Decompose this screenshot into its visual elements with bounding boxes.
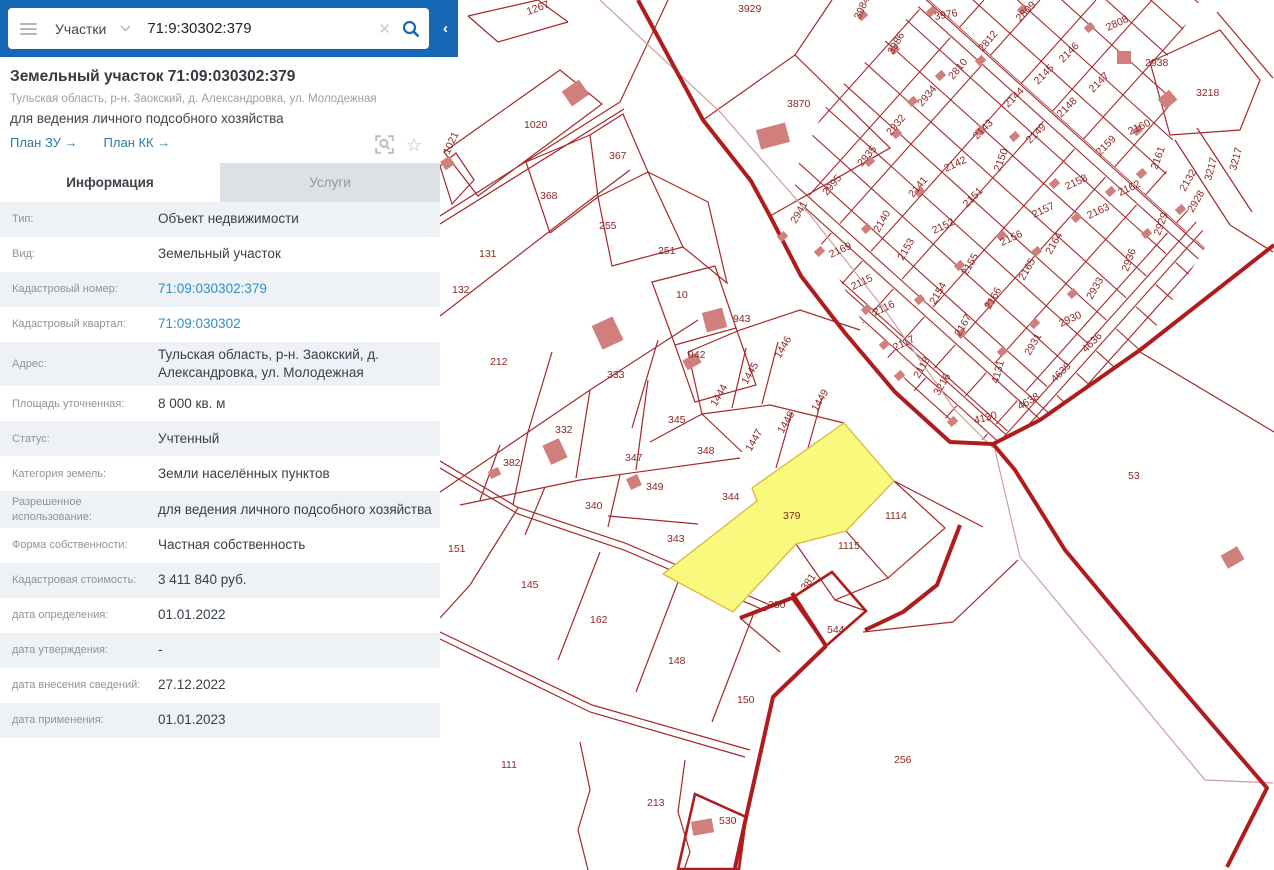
row-label: Категория земель:	[12, 467, 158, 481]
parcel-label-2159[interactable]: 2159	[1094, 133, 1119, 158]
parcel-label-3217[interactable]: 3217	[1202, 156, 1220, 182]
parcel-label-343[interactable]: 343	[667, 533, 685, 545]
parcel-label-2930[interactable]: 2930	[1057, 309, 1083, 330]
row-label: Форма собственности:	[12, 538, 158, 552]
row-label: Кадастровый номер:	[12, 282, 158, 296]
table-row: Разрешенное использование:для ведения ли…	[0, 491, 440, 528]
row-value: 3 411 840 руб.	[158, 571, 432, 589]
parcel-label-2936[interactable]: 2936	[1120, 247, 1139, 273]
search-category-label: Участки	[55, 21, 106, 37]
buildings	[440, 4, 1244, 836]
parcel-label-3929[interactable]: 3929	[738, 3, 762, 15]
building	[702, 308, 727, 333]
parcel-label-1446[interactable]: 1446	[772, 334, 794, 360]
parcel-label-2158[interactable]: 2158	[1063, 172, 1089, 193]
building	[1029, 318, 1040, 329]
parcel-label-1448[interactable]: 1448	[775, 409, 797, 435]
row-value: 8 000 кв. м	[158, 395, 432, 413]
parcel-label-380[interactable]: 380	[768, 599, 786, 611]
cadastral-map[interactable]: 1267392939843976398628092808281229382810…	[440, 0, 1274, 870]
map-area[interactable]: 1267392939843976398628092808281229382810…	[440, 0, 1274, 870]
parcel-label-367[interactable]: 367	[609, 150, 627, 162]
info-panel: Земельный участок 71:09:030302:379 Тульс…	[0, 0, 440, 870]
parcel-label-368[interactable]: 368	[540, 190, 558, 202]
parcel-label-131[interactable]: 131	[479, 248, 497, 260]
row-value: 01.01.2022	[158, 606, 432, 624]
parcel-label-2932[interactable]: 2932	[884, 112, 908, 138]
parcel-label-1449[interactable]: 1449	[809, 387, 831, 413]
table-row: дата внесения сведений:27.12.2022	[0, 668, 440, 703]
building	[1136, 168, 1147, 179]
menu-icon[interactable]	[20, 23, 37, 35]
parcel-label-530[interactable]: 530	[719, 815, 737, 827]
parcel-label-943[interactable]: 943	[733, 313, 751, 325]
table-row: Адрес:Тульская область, р-н. Заокский, д…	[0, 342, 440, 386]
building	[1009, 131, 1020, 142]
parcel-label-379[interactable]: 379	[783, 510, 801, 522]
parcel-label-344[interactable]: 344	[722, 491, 740, 503]
building	[440, 156, 455, 171]
table-row: Вид:Земельный участок	[0, 237, 440, 272]
parcel-label-2146[interactable]: 2146	[1057, 40, 1082, 65]
parcel-label-2149[interactable]: 2149	[1024, 121, 1049, 146]
parcel-label-145[interactable]: 145	[521, 579, 539, 591]
search-input[interactable]	[147, 20, 378, 37]
object-header: Земельный участок 71:09:030302:379 Тульс…	[0, 57, 440, 163]
row-label: дата применения:	[12, 713, 158, 727]
parcel-label-2148[interactable]: 2148	[1055, 95, 1080, 120]
parcel-label-381[interactable]: 381	[799, 571, 819, 592]
table-row: Тип:Объект недвижимости	[0, 202, 440, 237]
search-category-select[interactable]: Участки	[55, 21, 131, 37]
building	[1105, 186, 1116, 197]
table-row: Форма собственности:Частная собственност…	[0, 528, 440, 563]
parcel-label-349[interactable]: 349	[646, 481, 664, 493]
row-label: дата внесения сведений:	[12, 678, 158, 692]
parcel-label-256[interactable]: 256	[894, 754, 912, 766]
building	[814, 246, 825, 257]
parcel-label-2928[interactable]: 2928	[1185, 188, 1207, 214]
row-value: -	[158, 641, 432, 659]
collapse-panel-button[interactable]: ‹	[433, 0, 458, 57]
parcel-label-2155[interactable]: 2155	[959, 251, 981, 277]
parcel-label-251[interactable]: 251	[658, 245, 676, 257]
parcel-label-111[interactable]: 111	[501, 759, 517, 771]
building	[756, 122, 790, 149]
building	[997, 346, 1008, 357]
parcel-label-2809[interactable]: 2809	[1014, 0, 1039, 24]
building	[1158, 90, 1178, 110]
parcel-label-2116[interactable]: 2116	[871, 298, 897, 318]
parcel-label-2933[interactable]: 2933	[1084, 275, 1106, 301]
parcel-label-2931[interactable]: 2931	[1022, 331, 1044, 357]
table-row: Категория земель:Земли населённых пункто…	[0, 456, 440, 491]
clear-search-icon[interactable]: ✕	[378, 20, 391, 38]
building	[562, 80, 590, 107]
parcel-label-942[interactable]: 942	[688, 349, 706, 361]
page-title: Земельный участок 71:09:030302:379	[10, 68, 430, 86]
parcel-label-2165[interactable]: 2165	[1016, 256, 1038, 282]
parcel-label-3984[interactable]: 3984	[852, 0, 873, 21]
search-icon[interactable]	[401, 19, 421, 39]
building	[1067, 288, 1078, 299]
parcel-label-2167[interactable]: 2167	[952, 312, 974, 338]
table-row: дата применения:01.01.2023	[0, 703, 440, 738]
parcel-label-132[interactable]: 132	[452, 284, 470, 296]
row-label: Площадь уточненная:	[12, 397, 158, 411]
favorite-star-icon[interactable]: ☆	[406, 136, 422, 154]
parcel-label-345[interactable]: 345	[668, 414, 686, 426]
parcel-label-2153[interactable]: 2153	[895, 236, 917, 262]
parcel-label-544[interactable]: 544	[827, 624, 845, 636]
row-label: Адрес:	[12, 357, 158, 371]
building	[542, 438, 567, 465]
parcel-label-2115[interactable]: 2115	[849, 272, 875, 292]
parcel-label-2161[interactable]: 2161	[1149, 145, 1168, 171]
parcel-label-340[interactable]: 340	[585, 500, 603, 512]
parcel-label-2141[interactable]: 2141	[906, 174, 930, 200]
parcel-label-255[interactable]: 255	[599, 220, 617, 232]
row-label: дата определения:	[12, 608, 158, 622]
object-address: Тульская область, р-н. Заокский, д. Алек…	[10, 93, 430, 105]
table-row: Кадастровый квартал:71:09:030302	[0, 307, 440, 342]
table-row: дата утверждения:-	[0, 633, 440, 668]
parcel-label-2163[interactable]: 2163	[1085, 201, 1111, 222]
building	[488, 467, 501, 479]
parcel-label-151[interactable]: 151	[448, 543, 466, 555]
row-value-link[interactable]: 71:09:030302:379	[158, 280, 432, 298]
parcel-label-382[interactable]: 382	[503, 457, 521, 469]
table-row: дата определения:01.01.2022	[0, 598, 440, 633]
row-value: Объект недвижимости	[158, 210, 432, 228]
building	[935, 70, 946, 81]
building	[1221, 546, 1245, 568]
row-value: для ведения личного подсобного хозяйства	[158, 501, 432, 519]
parcel-label-1020[interactable]: 1020	[524, 119, 548, 131]
parcel-label-1444[interactable]: 1444	[708, 382, 730, 408]
table-row: Площадь уточненная:8 000 кв. м	[0, 386, 440, 421]
row-value-link[interactable]: 71:09:030302	[158, 315, 432, 333]
search-box: Участки ✕	[8, 8, 429, 49]
building	[626, 474, 642, 490]
parcel-label-2145[interactable]: 2145	[1032, 62, 1057, 87]
row-value: Частная собственность	[158, 536, 432, 554]
row-label: Статус:	[12, 432, 158, 446]
parcel-label-348[interactable]: 348	[697, 445, 715, 457]
parcel-label-1114[interactable]: 1114	[885, 510, 907, 522]
parcel-label-150[interactable]: 150	[737, 694, 755, 706]
parcel-label-2812[interactable]: 2812	[976, 28, 1000, 54]
parcel-label-1115[interactable]: 1115	[838, 540, 860, 552]
main-roads	[638, 0, 1274, 868]
plan-zu-link[interactable]: План ЗУ →	[10, 135, 78, 150]
building	[1117, 51, 1131, 64]
row-label: Кадастровый квартал:	[12, 317, 158, 331]
building	[691, 818, 714, 835]
row-label: Разрешенное использование:	[12, 495, 158, 524]
row-value: 01.01.2023	[158, 711, 432, 729]
parcel-label-2147[interactable]: 2147	[1087, 70, 1112, 95]
parcel-label-3218[interactable]: 3218	[1196, 87, 1220, 99]
parcel-label-2160[interactable]: 2160	[1126, 117, 1152, 138]
building	[894, 370, 905, 381]
table-row: Кадастровый номер:71:09:030302:379	[0, 272, 440, 307]
parcel-label-53[interactable]: 53	[1128, 470, 1140, 482]
parcel-label-2169[interactable]: 2169	[827, 240, 853, 261]
parcel-label-3870[interactable]: 3870	[787, 98, 811, 110]
row-value: Земельный участок	[158, 245, 432, 263]
parcel-label-10[interactable]: 10	[676, 289, 688, 301]
row-value: Земли населённых пунктов	[158, 465, 432, 483]
info-table: Тип:Объект недвижимостиВид:Земельный уча…	[0, 202, 440, 738]
parcel-label-3986[interactable]: 3986	[885, 30, 907, 56]
plan-kk-link[interactable]: План КК →	[104, 135, 171, 150]
parcel-label-347[interactable]: 347	[625, 452, 643, 464]
row-label: Тип:	[12, 212, 158, 226]
row-label: Вид:	[12, 247, 158, 261]
parcel-label-212[interactable]: 212	[490, 356, 508, 368]
parcel-label-148[interactable]: 148	[668, 655, 686, 667]
parcel-labels: 1267392939843976398628092808281229382810…	[441, 0, 1245, 827]
parcel-label-2810[interactable]: 2810	[946, 56, 970, 82]
parcel-label-2142[interactable]: 2142	[942, 154, 968, 175]
object-usage: для ведения личного подсобного хозяйства	[10, 111, 430, 126]
parcel-label-3217[interactable]: 3217	[1227, 146, 1245, 172]
tab-bar: Информация Услуги	[0, 163, 440, 202]
parcel-label-2151[interactable]: 2151	[961, 185, 986, 210]
table-row: Кадастровая стоимость:3 411 840 руб.	[0, 563, 440, 598]
table-row: Статус:Учтенный	[0, 421, 440, 456]
building	[1084, 22, 1095, 33]
parcel-label-2150[interactable]: 2150	[992, 147, 1011, 173]
row-value: 27.12.2022	[158, 676, 432, 694]
parcel-label-2157[interactable]: 2157	[1030, 200, 1056, 221]
parcel-label-2166[interactable]: 2166	[982, 285, 1004, 311]
row-value: Учтенный	[158, 430, 432, 448]
row-label: Кадастровая стоимость:	[12, 573, 158, 587]
parcel-label-2808[interactable]: 2808	[1104, 13, 1130, 34]
building	[1031, 246, 1042, 257]
parcel-label-333[interactable]: 333	[607, 369, 625, 381]
parcel-label-332[interactable]: 332	[555, 424, 573, 436]
tab-services[interactable]: Услуги	[220, 163, 440, 202]
parcel-label-2164[interactable]: 2164	[1043, 230, 1065, 256]
search-header: Участки ✕ ‹	[0, 0, 458, 57]
parcel-label-1021[interactable]: 1021	[441, 130, 462, 156]
zoom-to-object-icon[interactable]	[375, 135, 394, 154]
row-value: Тульская область, р-н. Заокский, д. Алек…	[158, 346, 432, 382]
parcel-label-213[interactable]: 213	[647, 797, 665, 809]
parcel-label-162[interactable]: 162	[590, 614, 608, 626]
chevron-down-icon	[120, 25, 131, 32]
building	[592, 316, 624, 349]
tab-information[interactable]: Информация	[0, 163, 220, 202]
parcel-label-2938[interactable]: 2938	[1145, 57, 1169, 69]
parcel-label-1447[interactable]: 1447	[743, 427, 765, 453]
row-label: дата утверждения:	[12, 643, 158, 657]
building	[1049, 178, 1060, 189]
